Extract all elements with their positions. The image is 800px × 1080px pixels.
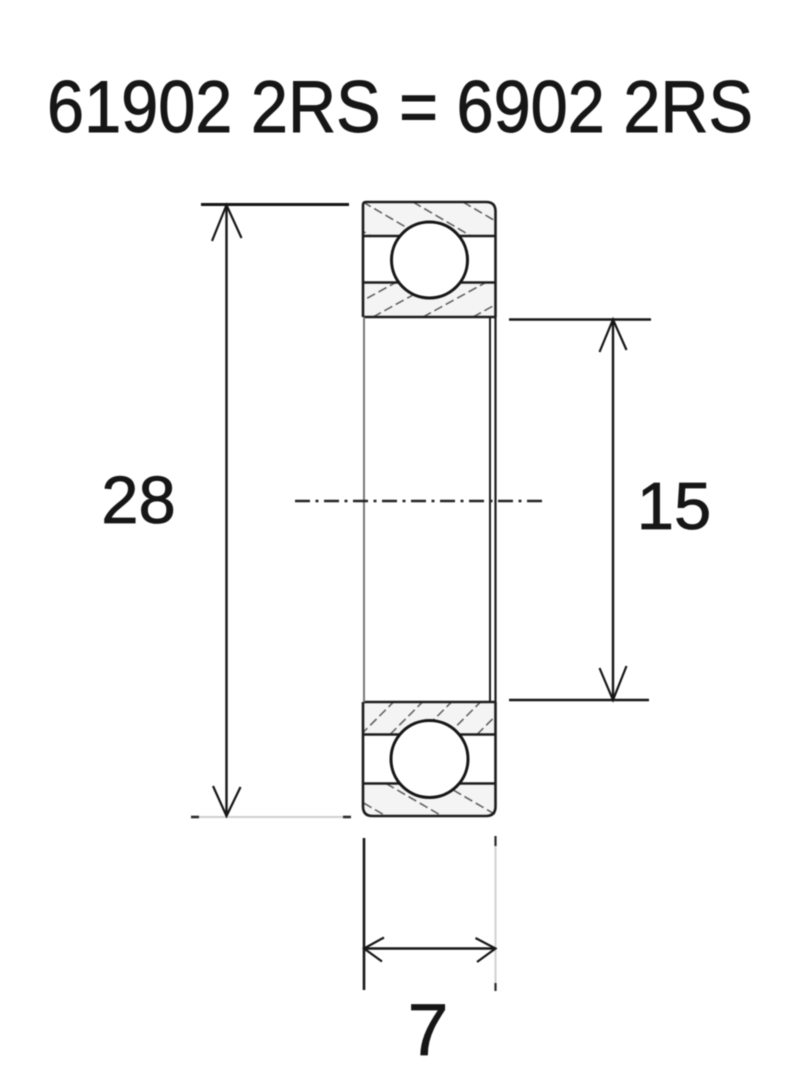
svg-text:7: 7	[408, 990, 449, 1071]
svg-text:15: 15	[637, 469, 712, 544]
svg-text:28: 28	[101, 463, 176, 538]
svg-text:61902 2RS = 6902 2RS: 61902 2RS = 6902 2RS	[47, 67, 753, 148]
